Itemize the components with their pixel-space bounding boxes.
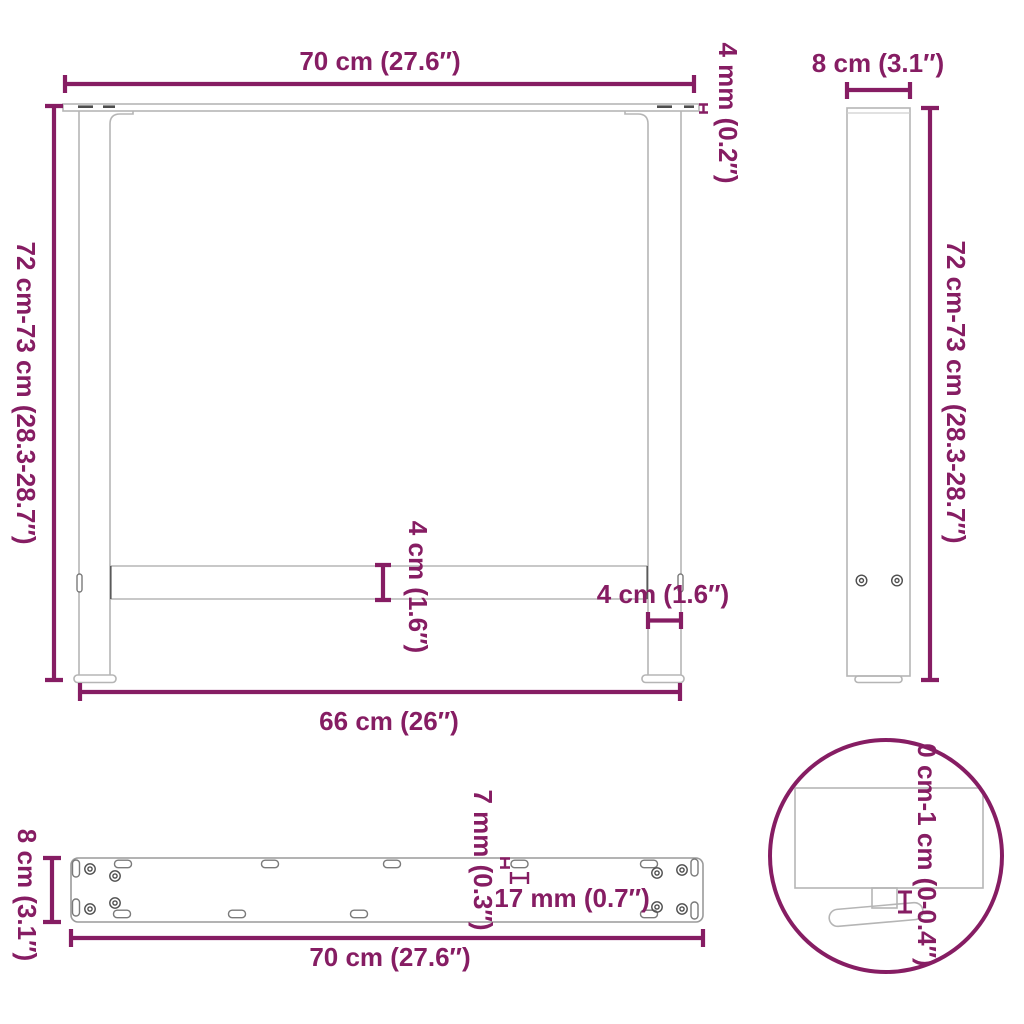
foot-detail-art	[795, 788, 983, 927]
foot-detail-view: 0 cm-1 cm (0-0.4″)	[770, 740, 1002, 972]
front-feet-span-dimension-line	[80, 683, 680, 701]
plate-slot	[384, 860, 401, 868]
plate-depth-dimension-line	[43, 858, 61, 922]
detail-foot-pad	[828, 902, 923, 927]
front-view: 70 cm (27.6″) 4 mm (0.2″) 72 cm-73 cm (2…	[11, 42, 743, 736]
plate-end-slot	[691, 902, 698, 919]
front-leg-width-tick	[648, 612, 681, 629]
front-top-width-dimension-line	[65, 75, 694, 93]
front-plate-slot-mark	[103, 105, 115, 108]
plate-end-slot	[691, 859, 698, 876]
plate-hole-length-label: 17 mm (0.7″)	[494, 883, 650, 913]
plate-slot	[351, 910, 368, 918]
detail-adjust-tick	[898, 892, 912, 912]
side-height-dimension-line	[921, 108, 939, 680]
table-leg-dimension-diagram: 70 cm (27.6″) 4 mm (0.2″) 72 cm-73 cm (2…	[0, 0, 1024, 1024]
side-width-label: 8 cm (3.1″)	[812, 48, 944, 78]
front-left-leg-inner-edge	[110, 111, 133, 675]
front-left-leg-slot	[77, 574, 82, 592]
diagram-canvas: 70 cm (27.6″) 4 mm (0.2″) 72 cm-73 cm (2…	[0, 0, 1024, 1024]
plate-end-slot	[73, 860, 80, 877]
front-crossbar-height-tick	[375, 565, 391, 600]
detail-leg-corner	[795, 788, 983, 888]
plate-slot	[262, 860, 279, 868]
plate-depth-label: 8 cm (3.1″)	[12, 829, 42, 961]
detail-adjustable-height-label: 0 cm-1 cm (0-0.4″)	[912, 743, 942, 966]
plate-slot	[115, 860, 132, 868]
side-leg-body	[847, 108, 910, 676]
side-width-dimension-line	[847, 82, 910, 99]
front-feet-span-label: 66 cm (26″)	[319, 706, 459, 736]
front-plate-slot-mark	[684, 105, 694, 108]
front-top-width-label: 70 cm (27.6″)	[299, 46, 460, 76]
plate-width-label: 70 cm (27.6″)	[309, 942, 470, 972]
plate-top-view: 8 cm (3.1″) 7 mm (0.3″) 17 mm (0.7″) 70 …	[12, 789, 703, 972]
front-height-label: 72 cm-73 cm (28.3-28.7″)	[11, 242, 41, 545]
plate-slot	[114, 910, 131, 918]
front-plate-slot-mark	[78, 105, 93, 108]
plate-end-slot	[73, 899, 80, 916]
front-leg-width-label: 4 cm (1.6″)	[597, 579, 729, 609]
front-crossbar-height-label: 4 cm (1.6″)	[403, 521, 433, 653]
plate-slot	[641, 860, 658, 868]
side-height-label: 72 cm-73 cm (28.3-28.7″)	[941, 241, 971, 544]
front-top-plate	[63, 104, 699, 111]
front-height-dimension-line	[45, 106, 63, 680]
plate-slot	[229, 910, 246, 918]
front-plate-thickness-tick	[699, 105, 708, 113]
front-right-foot	[642, 675, 684, 683]
front-plate-slot-mark	[657, 105, 672, 108]
front-plate-thickness-label: 4 mm (0.2″)	[713, 42, 743, 183]
plate-slot	[511, 860, 528, 868]
side-view: 8 cm (3.1″) 72 cm-73 cm (28.3-28.7″)	[812, 48, 971, 683]
side-foot	[855, 676, 902, 683]
front-left-foot	[74, 675, 116, 683]
